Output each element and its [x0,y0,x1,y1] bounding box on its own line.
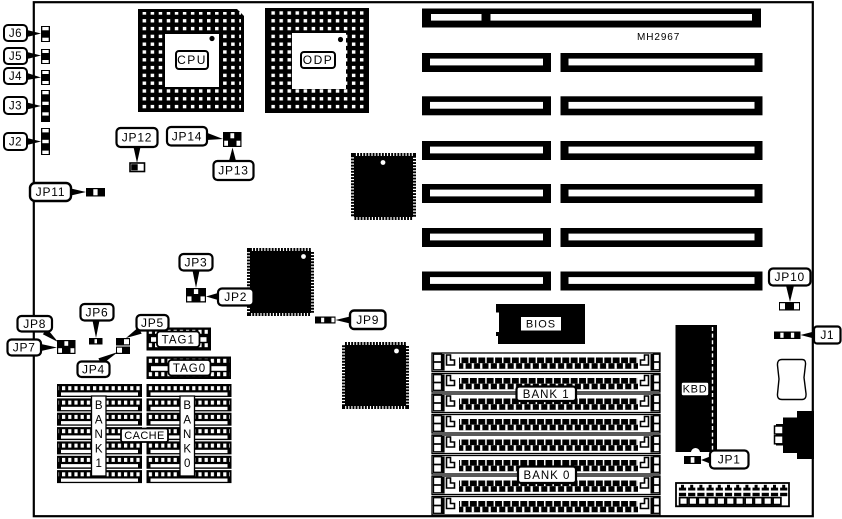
svg-text:JP11: JP11 [36,185,66,199]
svg-text:JP9: JP9 [356,313,379,327]
svg-text:B: B [95,400,103,412]
svg-text:JP13: JP13 [218,164,249,178]
svg-text:JP10: JP10 [774,270,805,284]
svg-text:J4: J4 [9,71,22,83]
svg-text:J2: J2 [9,137,22,149]
svg-text:1: 1 [95,458,101,470]
svg-text:CPU: CPU [177,53,207,67]
svg-text:JP3: JP3 [184,255,207,269]
svg-text:J6: J6 [9,28,22,40]
svg-text:J3: J3 [9,101,22,113]
svg-text:TAG0: TAG0 [173,363,206,375]
svg-text:A: A [183,415,191,427]
svg-text:K: K [95,444,103,456]
svg-text:JP1: JP1 [718,453,741,467]
svg-text:JP2: JP2 [224,290,247,304]
svg-text:BIOS: BIOS [526,319,556,331]
svg-text:MH2967: MH2967 [637,32,680,43]
svg-text:BANK 0: BANK 0 [524,470,571,482]
svg-text:A: A [95,415,103,427]
svg-text:K: K [183,444,191,456]
svg-text:N: N [95,429,103,441]
svg-text:JP6: JP6 [85,305,108,319]
svg-text:BANK 1: BANK 1 [523,389,570,401]
svg-text:B: B [183,400,191,412]
svg-text:JP12: JP12 [122,131,153,145]
svg-text:TAG1: TAG1 [162,334,195,346]
svg-text:JP14: JP14 [172,129,203,143]
svg-text:J1: J1 [820,328,834,342]
svg-text:ODP: ODP [303,53,334,67]
svg-text:J5: J5 [9,51,22,63]
svg-text:CACHE: CACHE [124,430,165,442]
svg-text:JP7: JP7 [13,341,36,355]
svg-text:0: 0 [184,458,190,470]
svg-text:N: N [183,429,191,441]
svg-text:JP5: JP5 [141,316,164,330]
svg-text:JP4: JP4 [82,362,105,376]
svg-text:JP8: JP8 [23,317,46,331]
svg-text:KBD: KBD [683,384,708,396]
